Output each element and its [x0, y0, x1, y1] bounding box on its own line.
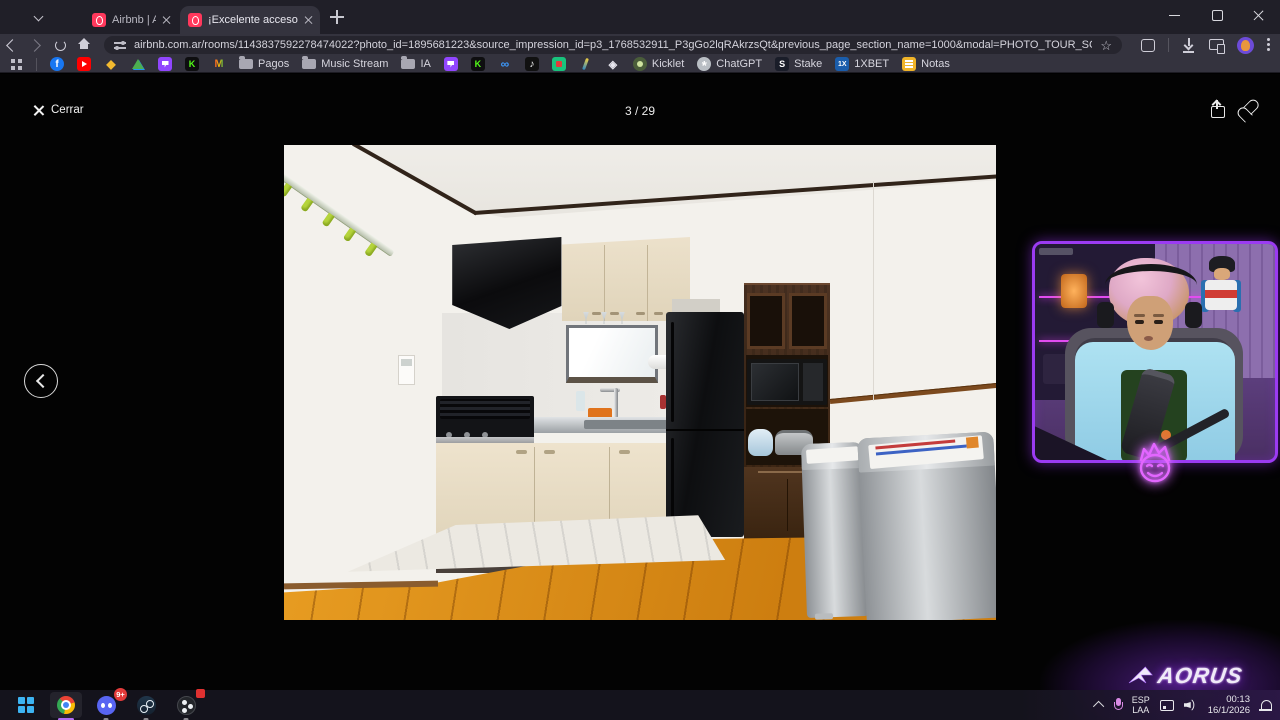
photo-tour-modal: Cerrar 3 / 29 — [0, 74, 1280, 690]
taskbar-discord[interactable]: 9+ — [90, 692, 122, 718]
kick-bookmark-icon[interactable] — [471, 57, 485, 71]
bookmarks-divider — [36, 58, 37, 71]
wall-chair-rail — [830, 383, 996, 404]
toolbar-action-icons — [1130, 37, 1280, 54]
streamer-face — [1127, 296, 1173, 350]
bookmark-label: Kicklet — [652, 58, 684, 70]
bookmark-label: IA — [420, 58, 430, 70]
window-close-button[interactable] — [1238, 0, 1280, 30]
meta-bookmark-icon[interactable] — [498, 57, 512, 71]
chatgpt-icon — [697, 57, 711, 71]
gas-stove — [436, 396, 534, 443]
anime-figure — [1214, 268, 1230, 280]
stake-icon — [775, 57, 789, 71]
new-tab-button[interactable] — [330, 10, 344, 24]
refrigerator — [666, 312, 744, 537]
discord-icon — [97, 696, 116, 715]
previous-photo-button[interactable] — [24, 364, 58, 398]
kick-bookmark-icon[interactable] — [185, 57, 199, 71]
share-icon[interactable] — [1209, 100, 1225, 117]
site-settings-icon[interactable] — [114, 40, 126, 50]
wall-corner — [873, 181, 874, 401]
headphone-earcup — [1185, 302, 1202, 328]
app-bookmark-icon[interactable] — [552, 57, 566, 71]
listing-photo-kitchen — [284, 145, 996, 620]
bookmark-1xbet[interactable]: 1XBET — [835, 57, 889, 71]
electric-kettle — [748, 429, 773, 456]
binance-bookmark-icon[interactable] — [104, 57, 118, 71]
screen: Airbnb | Alojamientos para vaca ¡Excelen… — [0, 0, 1280, 720]
aorus-eagle-icon — [1126, 665, 1155, 687]
diamond-bookmark-icon[interactable] — [606, 57, 620, 71]
chrome-icon — [57, 696, 75, 714]
speaker-icon[interactable] — [1184, 699, 1198, 711]
tiktok-bookmark-icon[interactable] — [525, 57, 539, 71]
1xbet-icon — [835, 57, 849, 71]
bookmark-folder-pagos[interactable]: Pagos — [239, 58, 289, 70]
bookmark-label: Music Stream — [321, 58, 388, 70]
gmail-bookmark-icon[interactable] — [212, 57, 226, 71]
windows-taskbar: 9+ ESPLAA 00:13 16/1/2026 — [0, 690, 1280, 720]
bookmark-notas[interactable]: Notas — [902, 57, 950, 71]
language-indicator[interactable]: ESPLAA — [1132, 695, 1150, 716]
browser-menu-icon[interactable] — [1266, 37, 1270, 53]
twitch-bookmark-icon[interactable] — [158, 57, 172, 71]
window-controls — [1154, 0, 1280, 30]
bookmark-folder-music-stream[interactable]: Music Stream — [302, 58, 388, 70]
airbnb-favicon-icon — [92, 13, 106, 27]
hanging-glasses — [580, 312, 640, 325]
kicklet-icon — [633, 57, 647, 71]
tab-search-button[interactable] — [30, 8, 48, 26]
obs-icon — [177, 696, 196, 715]
source-label — [1039, 248, 1073, 255]
youtube-bookmark-icon[interactable] — [77, 57, 91, 71]
box-on-fridge — [672, 299, 720, 313]
folder-icon — [239, 59, 253, 69]
tray-date: 16/1/2026 — [1208, 705, 1250, 716]
bookmark-stake[interactable]: Stake — [775, 57, 822, 71]
facebook-bookmark-icon[interactable] — [50, 57, 64, 71]
home-button[interactable] — [72, 36, 96, 54]
photo-counter: 3 / 29 — [0, 104, 1280, 118]
window-minimize-button[interactable] — [1154, 0, 1196, 30]
reload-button[interactable] — [48, 36, 72, 54]
notas-icon — [902, 57, 916, 71]
airbnb-favicon-icon — [188, 13, 202, 27]
tray-time: 00:13 — [1208, 694, 1250, 705]
bookmark-label: ChatGPT — [716, 58, 762, 70]
profile-avatar[interactable] — [1237, 37, 1254, 54]
windows-logo-icon — [18, 697, 34, 713]
drive-bookmark-icon[interactable] — [131, 57, 145, 71]
bookmark-label: Notas — [921, 58, 950, 70]
send-to-device-icon[interactable] — [1209, 37, 1225, 53]
notifications-bell-icon[interactable] — [1260, 699, 1272, 712]
folder-icon — [302, 59, 316, 69]
bookmark-kicklet[interactable]: Kicklet — [633, 57, 684, 71]
aorus-wordmark: AORUS — [1156, 663, 1244, 689]
trash-can — [857, 432, 996, 620]
discord-notification-badge: 9+ — [114, 688, 127, 701]
aorus-wallpaper-logo: AORUS — [1126, 663, 1244, 689]
tab-close-icon[interactable] — [162, 16, 170, 24]
downloads-icon[interactable] — [1181, 37, 1197, 53]
steam-icon — [137, 696, 156, 715]
red-bottle — [660, 395, 666, 409]
tray-microphone-icon[interactable] — [1114, 698, 1122, 712]
bookmark-star-icon[interactable]: ☆ — [1100, 39, 1112, 52]
upper-cabinets — [562, 237, 690, 321]
bookmark-label: Stake — [794, 58, 822, 70]
taskbar-obs[interactable] — [170, 692, 202, 718]
wall-control-panel — [398, 355, 415, 385]
tab-close-icon[interactable] — [304, 16, 312, 24]
bookmark-folder-ia[interactable]: IA — [401, 58, 430, 70]
quill-bookmark-icon[interactable] — [579, 57, 593, 71]
window-maximize-button[interactable] — [1196, 0, 1238, 30]
obs-recording-badge — [196, 689, 205, 698]
network-icon[interactable] — [1160, 700, 1174, 711]
headphone-earcup — [1097, 302, 1114, 328]
tray-expand-icon[interactable] — [1093, 701, 1104, 712]
soap-bottle — [576, 391, 585, 411]
bookmarks-bar: Pagos Music Stream IA Kicklet ChatGPT St… — [0, 56, 1280, 73]
orange-lamp — [1061, 274, 1087, 308]
tab-strip: Airbnb | Alojamientos para vaca ¡Excelen… — [0, 0, 1280, 34]
microwave — [747, 359, 827, 405]
chevron-down-icon — [34, 12, 44, 22]
browser-toolbar: airbnb.com.ar/rooms/1143837592278474022?… — [0, 34, 1280, 56]
taskbar-steam[interactable] — [130, 692, 162, 718]
webcam-video — [1035, 244, 1275, 460]
kitchen-window — [566, 325, 658, 383]
twitch-bookmark-icon[interactable] — [444, 57, 458, 71]
folder-icon — [401, 59, 415, 69]
url-text[interactable]: airbnb.com.ar/rooms/1143837592278474022?… — [134, 39, 1092, 51]
start-button[interactable] — [10, 692, 42, 718]
anime-figure — [1205, 290, 1237, 298]
viewer-actions — [1209, 100, 1258, 117]
bookmark-label: 1XBET — [854, 58, 889, 70]
bookmark-chatgpt[interactable]: ChatGPT — [697, 57, 762, 71]
coat-hook-rail — [284, 171, 395, 273]
heart-icon[interactable] — [1241, 100, 1258, 115]
apps-grid-icon[interactable] — [10, 58, 23, 71]
tab-airbnb-listing-1[interactable]: Airbnb | Alojamientos para vaca — [84, 6, 178, 34]
reading-list-icon[interactable] — [1140, 37, 1156, 53]
back-button[interactable] — [0, 36, 24, 54]
mascot-neon-logo — [1132, 436, 1178, 486]
toolbar-divider — [1168, 38, 1169, 52]
bookmark-label: Pagos — [258, 58, 289, 70]
tab-airbnb-listing-2[interactable]: ¡Excelente acceso al centro de l — [180, 6, 320, 34]
faucet — [614, 388, 618, 418]
system-tray: ESPLAA 00:13 16/1/2026 — [1096, 694, 1280, 717]
tab-label: ¡Excelente acceso al centro de l — [208, 14, 298, 26]
webcam-overlay — [1032, 241, 1278, 463]
tab-label: Airbnb | Alojamientos para vaca — [112, 14, 156, 26]
address-bar[interactable]: airbnb.com.ar/rooms/1143837592278474022?… — [104, 36, 1122, 54]
tray-clock[interactable]: 00:13 16/1/2026 — [1208, 694, 1250, 717]
forward-button[interactable] — [24, 36, 48, 54]
taskbar-apps: 9+ — [0, 692, 202, 718]
taskbar-chrome[interactable] — [50, 692, 82, 718]
